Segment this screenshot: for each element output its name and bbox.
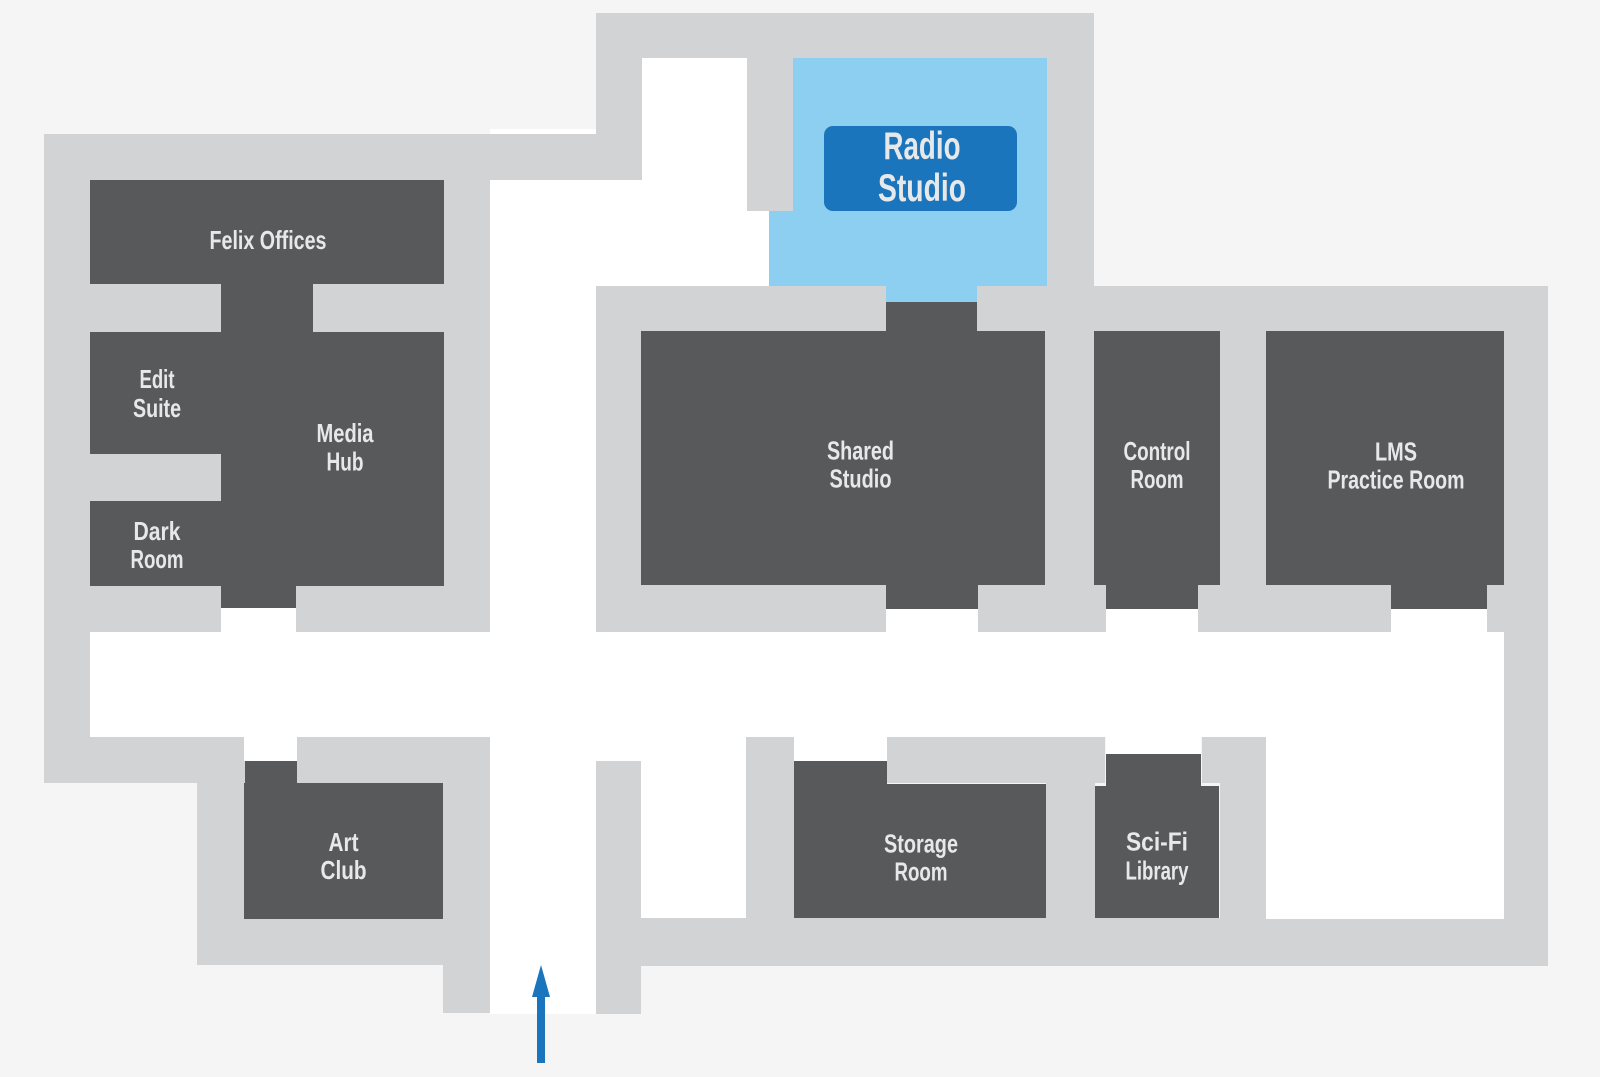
svg-text:Hub: Hub [327,447,364,477]
svg-text:Room: Room [895,857,948,887]
svg-text:Media: Media [317,418,374,448]
svg-text:LMS: LMS [1375,437,1417,467]
svg-text:Library: Library [1126,855,1189,885]
svg-text:Felix Offices: Felix Offices [210,225,327,255]
svg-text:Radio: Radio [884,125,961,168]
svg-text:Room: Room [131,544,184,574]
svg-text:Room: Room [1131,464,1184,494]
svg-text:Art: Art [329,827,359,857]
svg-text:Studio: Studio [830,464,892,494]
svg-text:Control: Control [1124,436,1191,466]
svg-text:Practice Room: Practice Room [1328,465,1465,495]
svg-text:Storage: Storage [884,829,958,859]
svg-text:Edit: Edit [140,364,175,394]
svg-text:Dark: Dark [134,516,181,546]
svg-text:Studio: Studio [878,167,966,210]
svg-text:Club: Club [321,855,367,885]
svg-text:Shared: Shared [827,436,894,466]
svg-text:Suite: Suite [133,393,181,423]
svg-text:Sci-Fi: Sci-Fi [1126,827,1188,857]
